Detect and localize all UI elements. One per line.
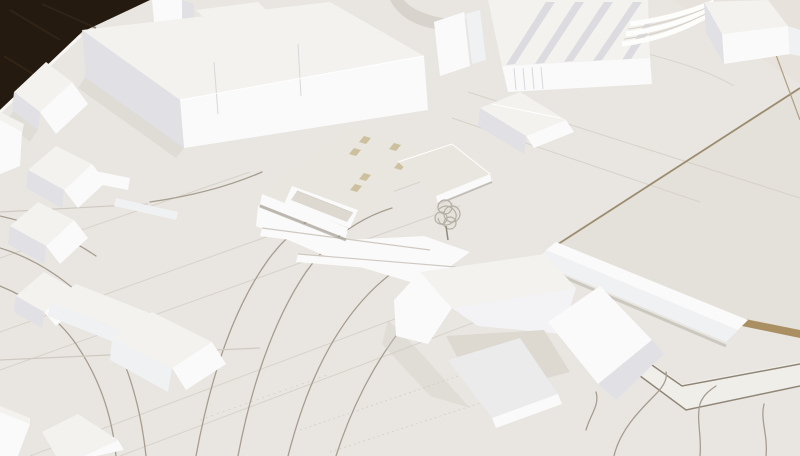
slab-face — [434, 12, 470, 76]
industrial-roofs — [488, 0, 652, 92]
model-scene — [0, 0, 800, 456]
model-photo — [0, 0, 800, 456]
